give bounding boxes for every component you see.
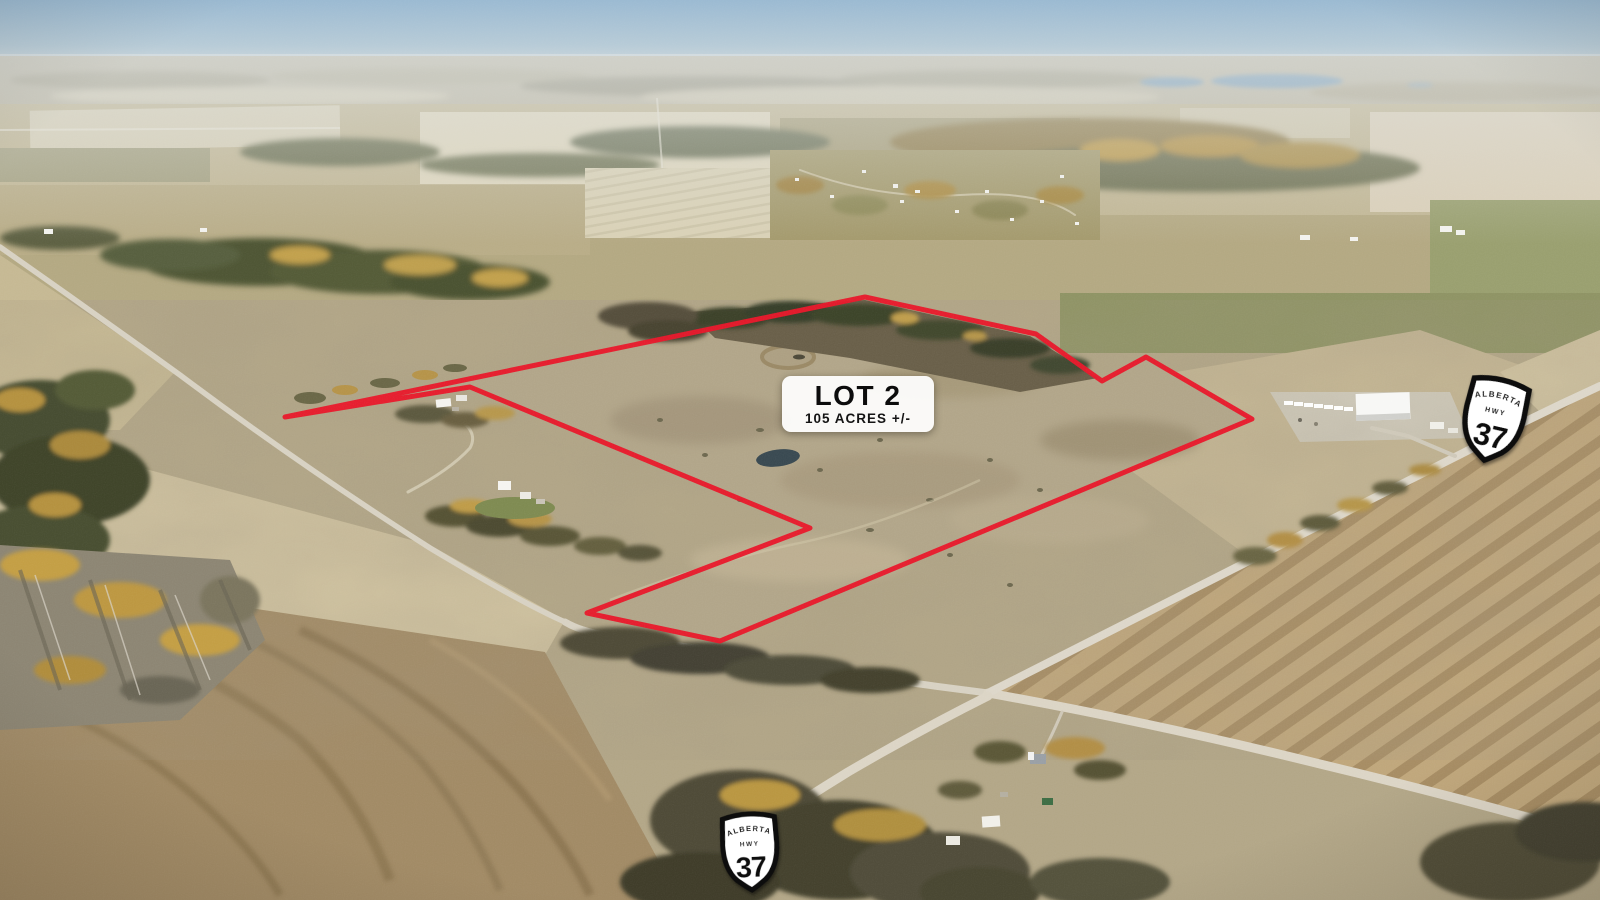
lot-title: LOT 2 <box>815 381 902 410</box>
aerial-photo: ALBERTA HWY 37 ALBERTA HWY 37 <box>0 0 1600 900</box>
vignette <box>0 0 1600 900</box>
shield-hwy-label: HWY <box>740 840 760 848</box>
lot-acreage: 105 ACRES +/- <box>805 411 911 427</box>
shield-number: 37 <box>735 851 767 885</box>
lot-label: LOT 2 105 ACRES +/- <box>782 376 934 432</box>
aerial-photo-stage: ALBERTA HWY 37 ALBERTA HWY 37 LOT 2 105 … <box>0 0 1600 900</box>
